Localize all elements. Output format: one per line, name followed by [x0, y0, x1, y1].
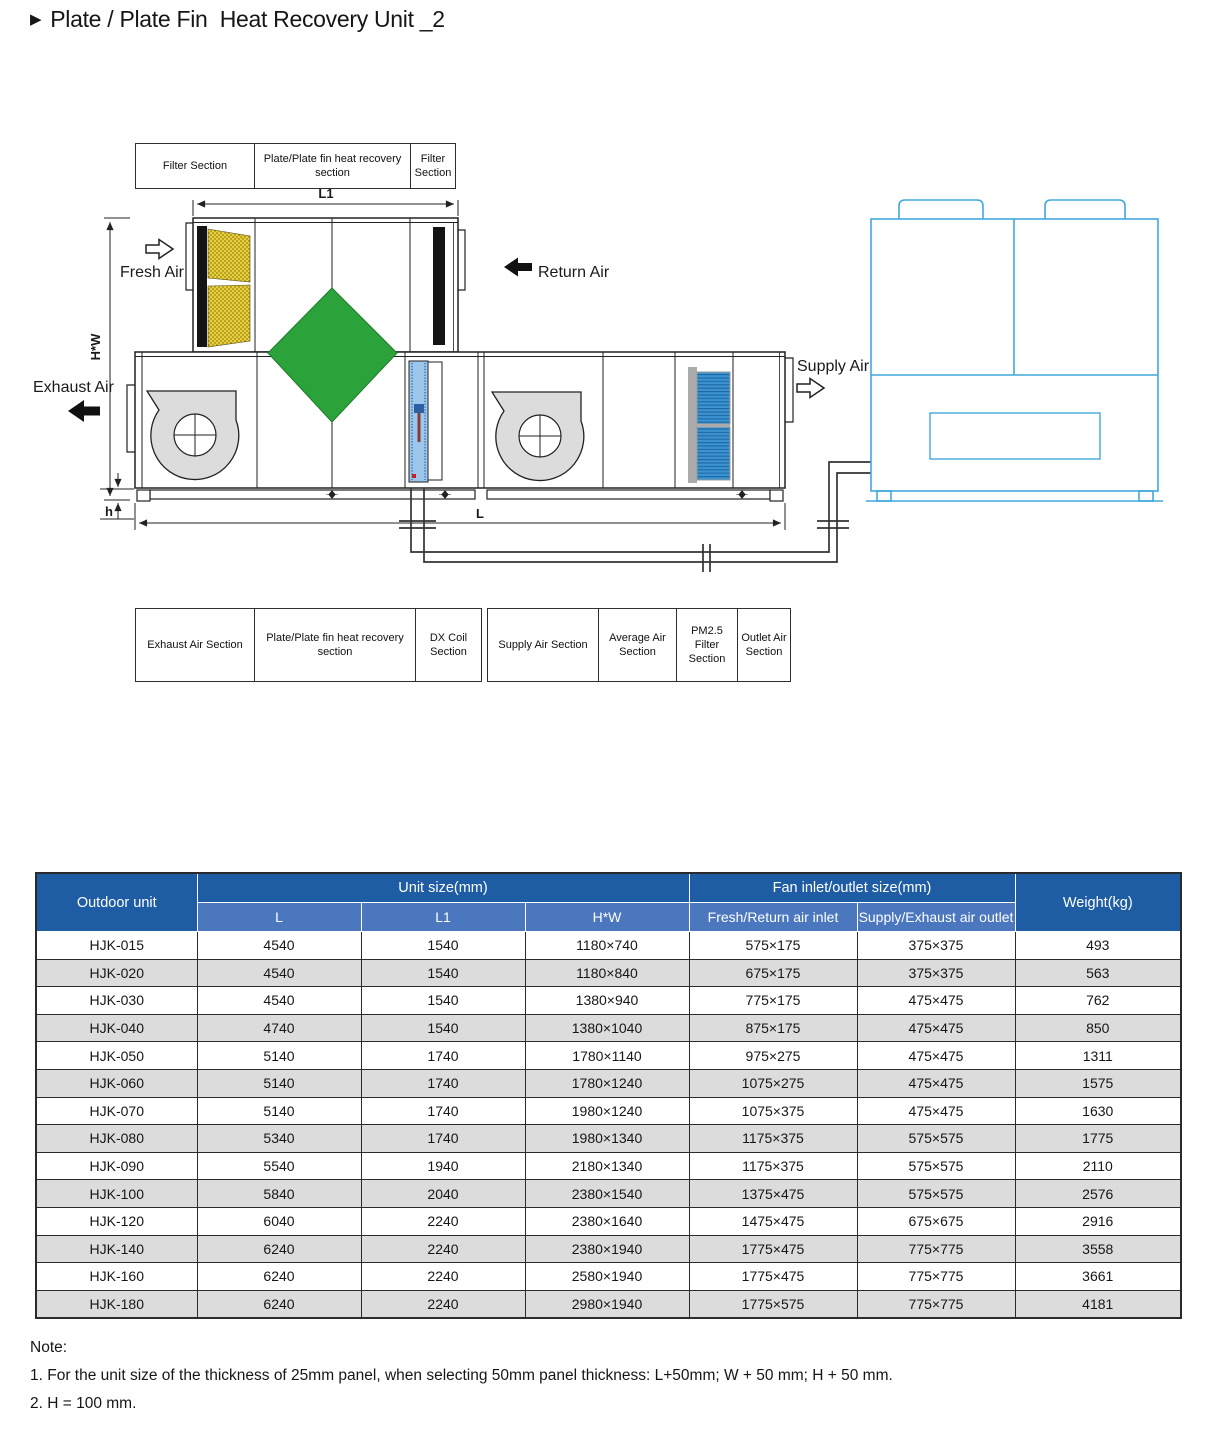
spec-value-cell: 6240 [197, 1235, 361, 1263]
spec-value-cell: 5840 [197, 1180, 361, 1208]
spec-table-row: HJK-030454015401380×940775×175475×475762 [36, 987, 1181, 1015]
base-anchor-marks [326, 491, 748, 499]
notes-block: Note: 1. For the unit size of the thickn… [30, 1334, 893, 1418]
dx-coil [409, 361, 442, 482]
spec-value-cell: 762 [1015, 987, 1181, 1015]
spec-value-cell: 1740 [361, 1042, 525, 1070]
lower-unit-box [135, 352, 785, 488]
spec-table-row: HJK-140624022402380×19401775×475775×7753… [36, 1235, 1181, 1263]
duct-flanges [127, 223, 793, 452]
spec-value-cell: 4181 [1015, 1290, 1181, 1318]
spec-value-cell: 1740 [361, 1125, 525, 1153]
exhaust-fan [147, 391, 239, 480]
model-cell: HJK-140 [36, 1235, 197, 1263]
spec-value-cell: 5540 [197, 1152, 361, 1180]
spec-value-cell: 4540 [197, 987, 361, 1015]
model-cell: HJK-060 [36, 1069, 197, 1097]
note-item-1: 1. For the unit size of the thickness of… [30, 1362, 893, 1390]
title-arrow-icon: ▶ [30, 11, 41, 28]
model-cell: HJK-015 [36, 932, 197, 960]
spec-value-cell: 4540 [197, 932, 361, 960]
refrigerant-pipes [399, 462, 871, 572]
spec-value-cell: 1075×275 [689, 1069, 857, 1097]
spec-value-cell: 6040 [197, 1207, 361, 1235]
spec-value-cell: 2980×1940 [525, 1290, 689, 1318]
spec-value-cell: 1980×1340 [525, 1125, 689, 1153]
spec-value-cell: 2240 [361, 1263, 525, 1291]
page-title: ▶Plate / Plate Fin Heat Recovery Unit _2 [30, 6, 445, 33]
spec-table: Outdoor unit Unit size(mm) Fan inlet/out… [35, 872, 1182, 1319]
model-cell: HJK-070 [36, 1097, 197, 1125]
spec-table-row: HJK-015454015401180×740575×175375×375493 [36, 932, 1181, 960]
page-title-text: Plate / Plate Fin Heat Recovery Unit _2 [50, 6, 445, 32]
section-label-heat-recovery-bottom: Plate/Plate fin heat recovery section [255, 608, 416, 682]
model-cell: HJK-160 [36, 1263, 197, 1291]
spec-value-cell: 775×175 [689, 987, 857, 1015]
col-subheader-l1: L1 [361, 903, 525, 932]
unit-base [137, 490, 783, 501]
spec-value-cell: 1780×1240 [525, 1069, 689, 1097]
spec-value-cell: 5340 [197, 1125, 361, 1153]
top-section-labels: Filter Section Plate/Plate fin heat reco… [135, 143, 456, 189]
spec-value-cell: 775×775 [857, 1290, 1015, 1318]
spec-value-cell: 775×775 [857, 1263, 1015, 1291]
spec-value-cell: 2240 [361, 1235, 525, 1263]
col-subheader-supply-exhaust-outlet: Supply/Exhaust air outlet [857, 903, 1015, 932]
spec-value-cell: 475×475 [857, 1069, 1015, 1097]
model-cell: HJK-030 [36, 987, 197, 1015]
spec-value-cell: 575×575 [857, 1180, 1015, 1208]
spec-value-cell: 3661 [1015, 1263, 1181, 1291]
spec-value-cell: 1175×375 [689, 1152, 857, 1180]
dim-label-hw: H*W [88, 333, 103, 360]
spec-value-cell: 1980×1240 [525, 1097, 689, 1125]
spec-value-cell: 975×275 [689, 1042, 857, 1070]
col-header-weight: Weight(kg) [1015, 873, 1181, 932]
spec-value-cell: 5140 [197, 1042, 361, 1070]
bottom-section-labels-right: Supply Air Section Average Air Section P… [487, 608, 791, 682]
spec-table-row: HJK-160624022402580×19401775×475775×7753… [36, 1263, 1181, 1291]
section-label-exhaust: Exhaust Air Section [135, 608, 255, 682]
spec-value-cell: 475×475 [857, 987, 1015, 1015]
model-cell: HJK-020 [36, 959, 197, 987]
spec-value-cell: 1180×740 [525, 932, 689, 960]
spec-value-cell: 1740 [361, 1097, 525, 1125]
spec-value-cell: 1311 [1015, 1042, 1181, 1070]
section-label-outlet: Outlet Air Section [738, 608, 791, 682]
spec-value-cell: 2380×1640 [525, 1207, 689, 1235]
exhaust-air-arrow-icon [68, 400, 100, 422]
col-subheader-fresh-return-inlet: Fresh/Return air inlet [689, 903, 857, 932]
spec-table-row: HJK-020454015401180×840675×175375×375563 [36, 959, 1181, 987]
spec-value-cell: 1380×1040 [525, 1014, 689, 1042]
spec-value-cell: 2380×1940 [525, 1235, 689, 1263]
outdoor-unit [866, 200, 1163, 501]
spec-value-cell: 563 [1015, 959, 1181, 987]
return-air-filter [433, 227, 445, 345]
spec-table-row: HJK-060514017401780×12401075×275475×4751… [36, 1069, 1181, 1097]
spec-value-cell: 850 [1015, 1014, 1181, 1042]
dim-label-l: L [476, 506, 484, 521]
spec-value-cell: 2380×1540 [525, 1180, 689, 1208]
spec-table-row: HJK-090554019402180×13401175×375575×5752… [36, 1152, 1181, 1180]
spec-value-cell: 1540 [361, 1014, 525, 1042]
model-cell: HJK-180 [36, 1290, 197, 1318]
spec-value-cell: 2180×1340 [525, 1152, 689, 1180]
dimension-l [135, 503, 785, 530]
section-label-heat-recovery-top: Plate/Plate fin heat recovery section [255, 143, 411, 189]
spec-value-cell: 875×175 [689, 1014, 857, 1042]
spec-value-cell: 475×475 [857, 1097, 1015, 1125]
spec-table-row: HJK-070514017401980×12401075×375475×4751… [36, 1097, 1181, 1125]
model-cell: HJK-120 [36, 1207, 197, 1235]
spec-value-cell: 1940 [361, 1152, 525, 1180]
spec-value-cell: 475×475 [857, 1014, 1015, 1042]
spec-value-cell: 1775 [1015, 1125, 1181, 1153]
spec-table-row: HJK-050514017401780×1140975×275475×47513… [36, 1042, 1181, 1070]
spec-value-cell: 1175×375 [689, 1125, 857, 1153]
spec-value-cell: 1775×475 [689, 1263, 857, 1291]
fresh-air-filter [197, 226, 250, 347]
model-cell: HJK-080 [36, 1125, 197, 1153]
spec-value-cell: 5140 [197, 1069, 361, 1097]
spec-value-cell: 1540 [361, 932, 525, 960]
spec-value-cell: 1075×375 [689, 1097, 857, 1125]
spec-value-cell: 1375×475 [689, 1180, 857, 1208]
col-header-fan-size: Fan inlet/outlet size(mm) [689, 873, 1015, 903]
dimension-l1 [193, 200, 458, 216]
model-cell: HJK-090 [36, 1152, 197, 1180]
spec-value-cell: 1740 [361, 1069, 525, 1097]
spec-value-cell: 475×475 [857, 1042, 1015, 1070]
spec-value-cell: 1540 [361, 987, 525, 1015]
spec-value-cell: 2240 [361, 1290, 525, 1318]
spec-table-row: HJK-080534017401980×13401175×375575×5751… [36, 1125, 1181, 1153]
return-air-arrow-icon [504, 258, 532, 277]
spec-value-cell: 675×175 [689, 959, 857, 987]
col-header-outdoor-unit: Outdoor unit [36, 873, 197, 932]
dimension-hw [104, 218, 130, 500]
heat-recovery-unit-diagram: L1 H*W L h [0, 0, 1214, 700]
spec-table-row: HJK-040474015401380×1040875×175475×47585… [36, 1014, 1181, 1042]
fresh-air-arrow-icon [146, 240, 173, 259]
spec-table-body: HJK-015454015401180×740575×175375×375493… [36, 932, 1181, 1319]
return-air-label: Return Air [538, 264, 610, 281]
spec-value-cell: 1575 [1015, 1069, 1181, 1097]
note-item-2: 2. H = 100 mm. [30, 1390, 893, 1418]
bottom-section-labels-left: Exhaust Air Section Plate/Plate fin heat… [135, 608, 482, 682]
spec-value-cell: 2110 [1015, 1152, 1181, 1180]
spec-value-cell: 1540 [361, 959, 525, 987]
upper-unit-box [193, 218, 458, 352]
model-cell: HJK-050 [36, 1042, 197, 1070]
section-label-dx-coil: DX Coil Section [416, 608, 482, 682]
spec-value-cell: 1475×475 [689, 1207, 857, 1235]
dim-label-h: h [105, 504, 113, 519]
spec-value-cell: 1775×475 [689, 1235, 857, 1263]
spec-value-cell: 2916 [1015, 1207, 1181, 1235]
notes-heading: Note: [30, 1334, 893, 1362]
col-header-unit-size: Unit size(mm) [197, 873, 689, 903]
fresh-air-label: Fresh Air [120, 264, 185, 281]
spec-value-cell: 3558 [1015, 1235, 1181, 1263]
spec-value-cell: 493 [1015, 932, 1181, 960]
spec-value-cell: 2040 [361, 1180, 525, 1208]
spec-value-cell: 2240 [361, 1207, 525, 1235]
exhaust-air-label: Exhaust Air [33, 379, 115, 396]
model-cell: HJK-040 [36, 1014, 197, 1042]
spec-value-cell: 775×775 [857, 1235, 1015, 1263]
spec-value-cell: 575×175 [689, 932, 857, 960]
spec-value-cell: 1775×575 [689, 1290, 857, 1318]
spec-table-row: HJK-100584020402380×15401375×475575×5752… [36, 1180, 1181, 1208]
supply-air-arrow-icon [797, 379, 824, 398]
spec-value-cell: 1380×940 [525, 987, 689, 1015]
dimension-h [100, 473, 134, 519]
spec-value-cell: 2580×1940 [525, 1263, 689, 1291]
model-cell: HJK-100 [36, 1180, 197, 1208]
col-subheader-l: L [197, 903, 361, 932]
section-label-filter-left: Filter Section [135, 143, 255, 189]
spec-value-cell: 675×675 [857, 1207, 1015, 1235]
datasheet-page: ▶Plate / Plate Fin Heat Recovery Unit _2… [0, 0, 1214, 1437]
supply-air-label: Supply Air [797, 358, 870, 375]
spec-value-cell: 575×575 [857, 1125, 1015, 1153]
spec-value-cell: 375×375 [857, 959, 1015, 987]
spec-value-cell: 6240 [197, 1263, 361, 1291]
spec-table-row: HJK-180624022402980×19401775×575775×7754… [36, 1290, 1181, 1318]
pm25-filter [688, 367, 730, 483]
section-label-filter-right: Filter Section [411, 143, 456, 189]
col-subheader-hw: H*W [525, 903, 689, 932]
spec-value-cell: 1630 [1015, 1097, 1181, 1125]
spec-value-cell: 575×575 [857, 1152, 1015, 1180]
spec-value-cell: 6240 [197, 1290, 361, 1318]
spec-table-row: HJK-120604022402380×16401475×475675×6752… [36, 1207, 1181, 1235]
spec-value-cell: 4540 [197, 959, 361, 987]
section-label-average: Average Air Section [599, 608, 677, 682]
spec-value-cell: 2576 [1015, 1180, 1181, 1208]
spec-value-cell: 1780×1140 [525, 1042, 689, 1070]
supply-fan [492, 392, 584, 481]
spec-value-cell: 375×375 [857, 932, 1015, 960]
section-label-pm25: PM2.5 Filter Section [677, 608, 738, 682]
section-label-supply: Supply Air Section [487, 608, 599, 682]
heat-exchanger [268, 288, 397, 422]
spec-value-cell: 5140 [197, 1097, 361, 1125]
spec-value-cell: 1180×840 [525, 959, 689, 987]
spec-value-cell: 4740 [197, 1014, 361, 1042]
